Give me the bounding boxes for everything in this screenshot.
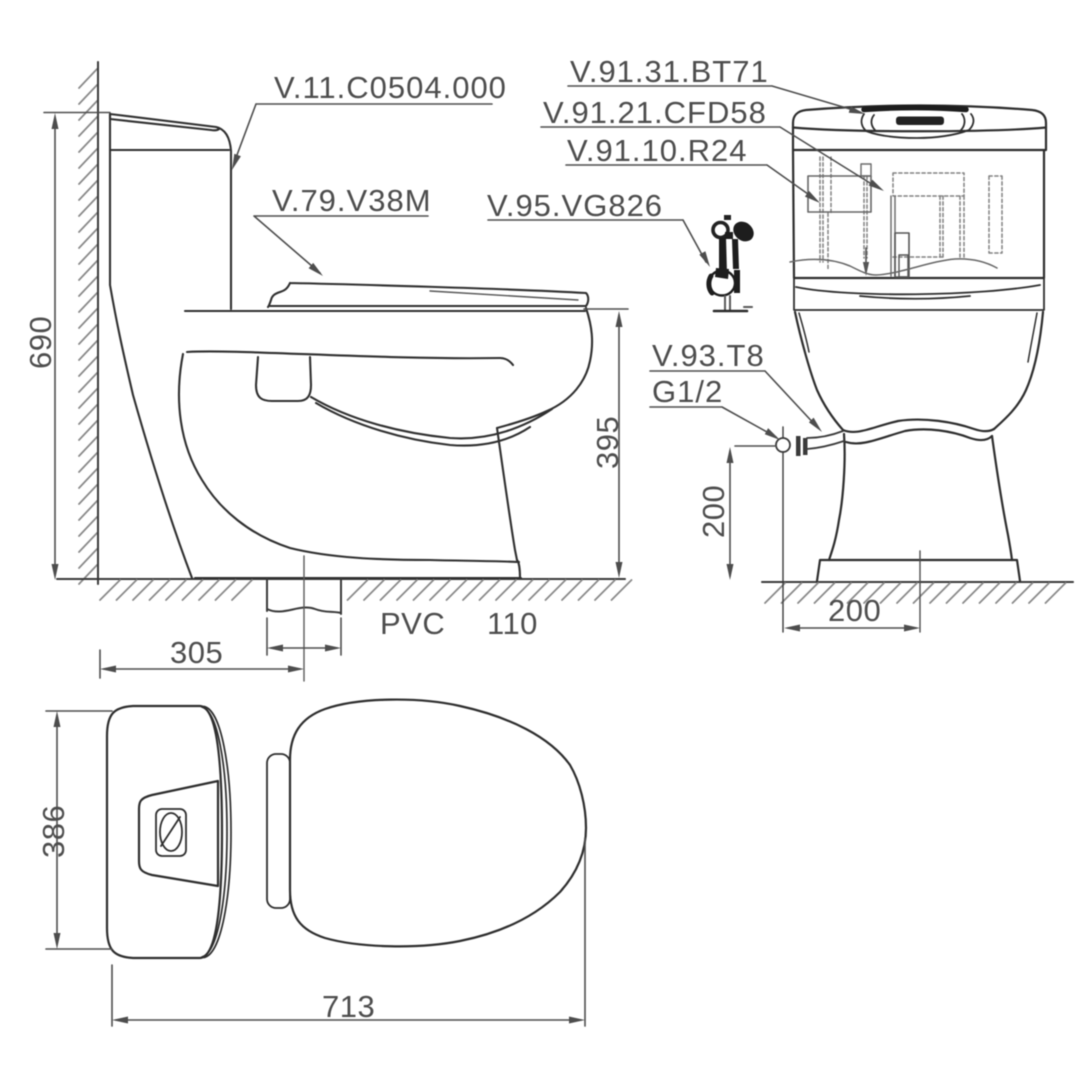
svg-text:386: 386: [36, 805, 71, 858]
svg-text:200: 200: [828, 593, 881, 628]
svg-text:V.91.31.BT71: V.91.31.BT71: [570, 54, 769, 89]
svg-text:713: 713: [322, 989, 375, 1024]
svg-text:200: 200: [696, 485, 731, 538]
svg-text:V.79.V38M: V.79.V38M: [272, 183, 432, 218]
svg-text:305: 305: [170, 635, 223, 670]
svg-text:G1/2: G1/2: [652, 374, 723, 409]
svg-text:395: 395: [590, 416, 625, 469]
svg-text:V.91.10.R24: V.91.10.R24: [567, 133, 748, 168]
svg-text:V.91.21.CFD58: V.91.21.CFD58: [543, 95, 767, 130]
svg-text:V.11.C0504.000: V.11.C0504.000: [274, 70, 507, 105]
svg-text:V.93.T8: V.93.T8: [652, 338, 765, 373]
svg-text:PVC: PVC: [380, 606, 445, 641]
svg-text:V.95.VG826: V.95.VG826: [487, 188, 663, 223]
svg-text:110: 110: [487, 606, 538, 641]
svg-text:690: 690: [23, 316, 58, 369]
